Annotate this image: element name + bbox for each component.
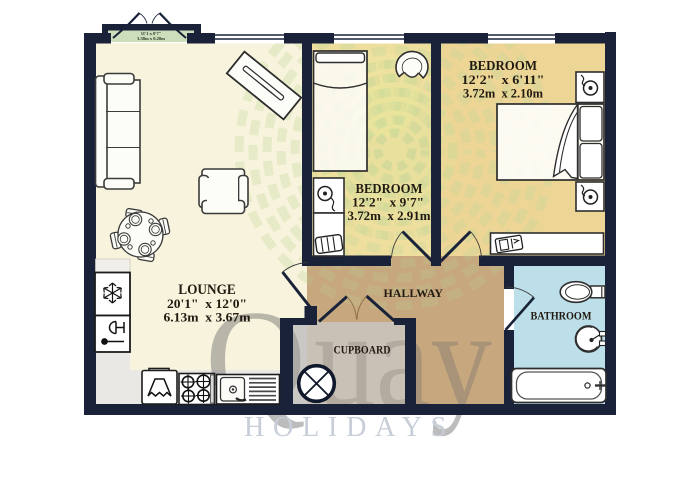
svg-text:3.72m x 2.91m: 3.72m x 2.91m [348,209,431,223]
svg-text:3.38m x 0.20m: 3.38m x 0.20m [137,36,165,41]
svg-text:HOLIDAYS: HOLIDAYS [244,411,455,443]
svg-text:12'2" x 9'7": 12'2" x 9'7" [352,196,424,210]
svg-text:LOUNGE: LOUNGE [178,282,236,298]
svg-text:CUPBOARD: CUPBOARD [334,345,391,357]
svg-text:6.13m x 3.67m: 6.13m x 3.67m [164,311,251,325]
svg-text:20'1" x 12'0": 20'1" x 12'0" [167,297,247,311]
svg-text:3.72m x 2.10m: 3.72m x 2.10m [463,87,543,101]
svg-text:BATHROOM: BATHROOM [531,311,592,323]
svg-text:BEDROOM: BEDROOM [356,181,423,196]
svg-text:12'2" x 6'11": 12'2" x 6'11" [462,73,545,87]
svg-text:HALLWAY: HALLWAY [384,288,444,300]
svg-text:BEDROOM: BEDROOM [469,58,537,73]
